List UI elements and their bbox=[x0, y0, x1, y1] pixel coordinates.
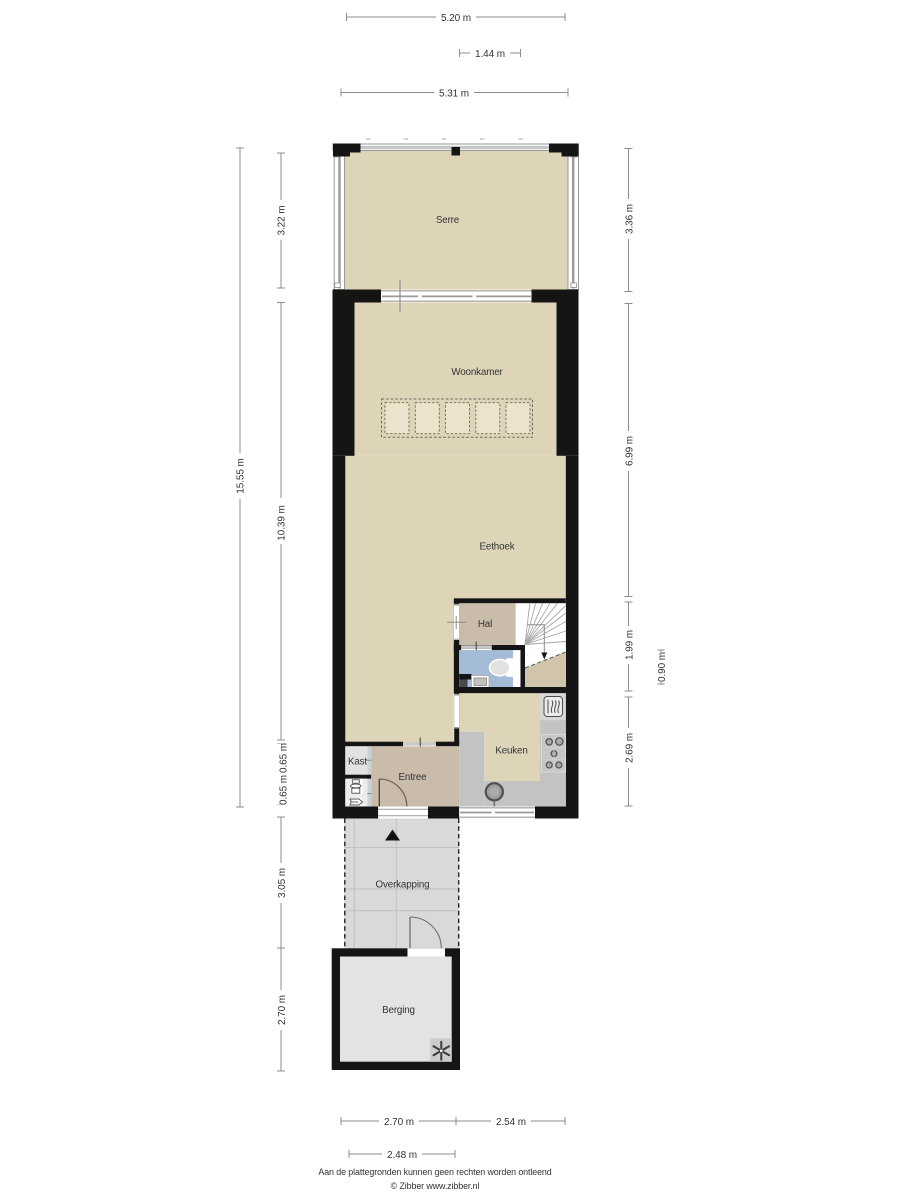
svg-text:2.70 m: 2.70 m bbox=[277, 995, 288, 1025]
svg-text:1.44 m: 1.44 m bbox=[475, 49, 505, 60]
svg-text:2.70 m: 2.70 m bbox=[384, 1117, 414, 1128]
svg-text:5.20 m: 5.20 m bbox=[441, 13, 471, 24]
svg-text:0.65 m: 0.65 m bbox=[279, 743, 290, 773]
svg-text:Woonkamer: Woonkamer bbox=[451, 367, 503, 378]
svg-text:Hal: Hal bbox=[478, 619, 492, 630]
svg-text:1.99 m: 1.99 m bbox=[625, 630, 636, 660]
svg-text:3.05 m: 3.05 m bbox=[277, 868, 288, 898]
svg-text:Entree: Entree bbox=[399, 772, 428, 783]
svg-text:15.55 m: 15.55 m bbox=[236, 458, 247, 493]
svg-text:Eethoek: Eethoek bbox=[480, 542, 515, 553]
svg-text:5.31 m: 5.31 m bbox=[439, 89, 469, 100]
svg-text:3.22 m: 3.22 m bbox=[277, 206, 288, 236]
svg-text:2.69 m: 2.69 m bbox=[625, 733, 636, 763]
svg-text:10.39 m: 10.39 m bbox=[277, 505, 288, 540]
svg-text:Aan de plattegronden kunnen ge: Aan de plattegronden kunnen geen rechten… bbox=[318, 1167, 551, 1177]
svg-text:2.54 m: 2.54 m bbox=[496, 1117, 526, 1128]
svg-text:© Zibber www.zibber.nl: © Zibber www.zibber.nl bbox=[391, 1181, 480, 1191]
svg-text:Keuken: Keuken bbox=[495, 746, 527, 757]
svg-text:0.65 m: 0.65 m bbox=[279, 775, 290, 805]
svg-text:0.90 m: 0.90 m bbox=[657, 652, 668, 682]
svg-text:Kast: Kast bbox=[348, 757, 367, 768]
svg-text:2.48 m: 2.48 m bbox=[387, 1150, 417, 1161]
svg-text:Berging: Berging bbox=[382, 1005, 415, 1016]
svg-text:Serre: Serre bbox=[436, 215, 460, 226]
svg-text:Overkapping: Overkapping bbox=[376, 880, 430, 891]
svg-text:3.36 m: 3.36 m bbox=[625, 204, 636, 234]
svg-text:6.99 m: 6.99 m bbox=[625, 436, 636, 466]
